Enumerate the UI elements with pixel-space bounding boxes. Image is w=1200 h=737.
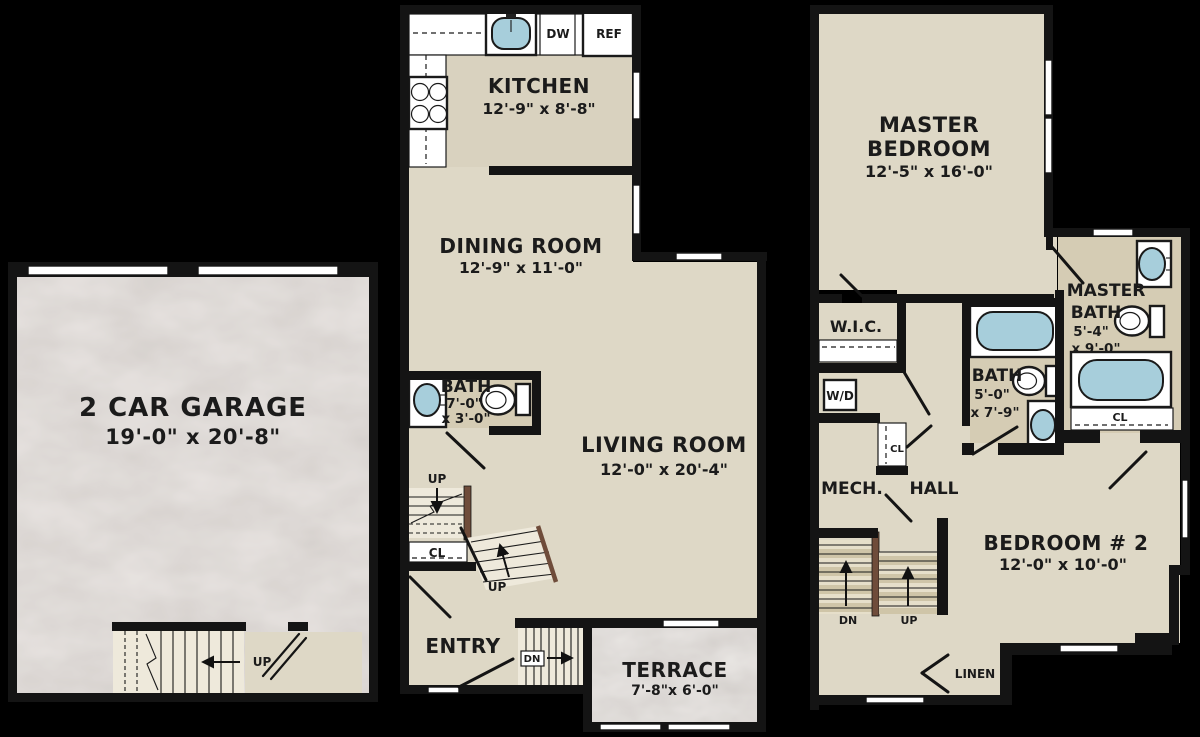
bath-name: BATH bbox=[441, 377, 492, 397]
stair-dn-label: DN bbox=[524, 654, 541, 665]
terrace-dims: 7'-8"x 6'-0" bbox=[631, 683, 719, 699]
stair-dn-label-2f: DN bbox=[839, 614, 857, 627]
wic-shelf bbox=[819, 340, 897, 362]
kitchen-name: KITCHEN bbox=[488, 74, 590, 98]
master-bedroom-name-2: BEDROOM bbox=[867, 137, 991, 161]
bath2-name: BATH bbox=[972, 366, 1023, 386]
master-bedroom-name-1: MASTER bbox=[879, 113, 979, 137]
master-bedroom-dims: 12'-5" x 16'-0" bbox=[865, 162, 993, 181]
washer-dryer-label: W/D bbox=[826, 389, 854, 403]
dining-room-name: DINING ROOM bbox=[439, 234, 602, 258]
bath2-dims-2: x 7'-9" bbox=[971, 405, 1020, 421]
dining-room-dims: 12'-9" x 11'-0" bbox=[459, 259, 583, 277]
bath2-tub bbox=[970, 305, 1060, 357]
stair-up-label-2f: UP bbox=[901, 614, 918, 627]
living-room-dims: 12'-0" x 20'-4" bbox=[600, 460, 728, 479]
hall-name: HALL bbox=[909, 479, 958, 499]
linen-name: LINEN bbox=[955, 667, 995, 681]
bedroom2-name: BEDROOM # 2 bbox=[984, 531, 1149, 555]
garage-name: 2 CAR GARAGE bbox=[79, 393, 307, 423]
dishwasher-label: DW bbox=[546, 27, 569, 41]
floor-plan-svg: UP 2 CAR GARAGE 19'-0" x 20'-8" DW REF bbox=[0, 0, 1200, 737]
master-bath-name-2: BATH bbox=[1071, 303, 1122, 323]
bedroom2-closet-label: CL bbox=[1112, 411, 1127, 424]
garage-floor-plan: UP 2 CAR GARAGE 19'-0" x 20'-8" bbox=[8, 262, 378, 702]
bath2-dims-1: 5'-0" bbox=[974, 387, 1010, 403]
living-room-name: LIVING ROOM bbox=[581, 433, 747, 457]
entry-name: ENTRY bbox=[425, 634, 500, 658]
garage-stairs: UP bbox=[112, 622, 362, 693]
kitchen-sink bbox=[486, 11, 536, 55]
bath-dims-1: 7'-0" bbox=[446, 396, 482, 412]
mech-name: MECH. bbox=[821, 479, 883, 499]
kitchen-dims: 12'-9" x 8'-8" bbox=[482, 100, 595, 118]
bedroom2-dims: 12'-0" x 10'-0" bbox=[999, 555, 1127, 574]
refrigerator-label: REF bbox=[596, 27, 622, 41]
winder-up-label: UP bbox=[488, 580, 507, 594]
terrace-name: TERRACE bbox=[622, 658, 727, 682]
master-bath-dims-1: 5'-4" bbox=[1073, 324, 1109, 340]
stair-closet-label: CL bbox=[429, 546, 446, 560]
master-bath-tub bbox=[1071, 352, 1171, 407]
stair-up-label: UP bbox=[428, 472, 447, 486]
hall-closet-label: CL bbox=[890, 444, 904, 455]
floor-plan-sheet: UP 2 CAR GARAGE 19'-0" x 20'-8" DW REF bbox=[0, 0, 1200, 737]
garage-dims: 19'-0" x 20'-8" bbox=[105, 425, 281, 449]
stove bbox=[409, 77, 447, 129]
master-bath-dims-2: x 9'-0" bbox=[1072, 341, 1121, 357]
master-bath-toilet bbox=[1115, 306, 1164, 337]
garage-stair-up-label: UP bbox=[253, 655, 272, 669]
bath-dims-2: x 3'-0" bbox=[442, 411, 491, 427]
wic-name: W.I.C. bbox=[830, 317, 882, 336]
master-bath-name-1: MASTER bbox=[1067, 281, 1146, 301]
